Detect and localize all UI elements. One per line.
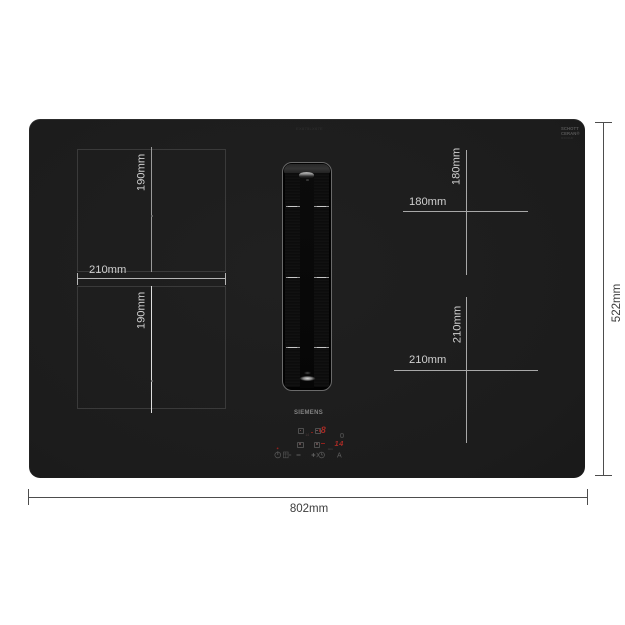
svg-text:min: min: [328, 447, 333, 451]
svg-text:A: A: [337, 453, 342, 460]
